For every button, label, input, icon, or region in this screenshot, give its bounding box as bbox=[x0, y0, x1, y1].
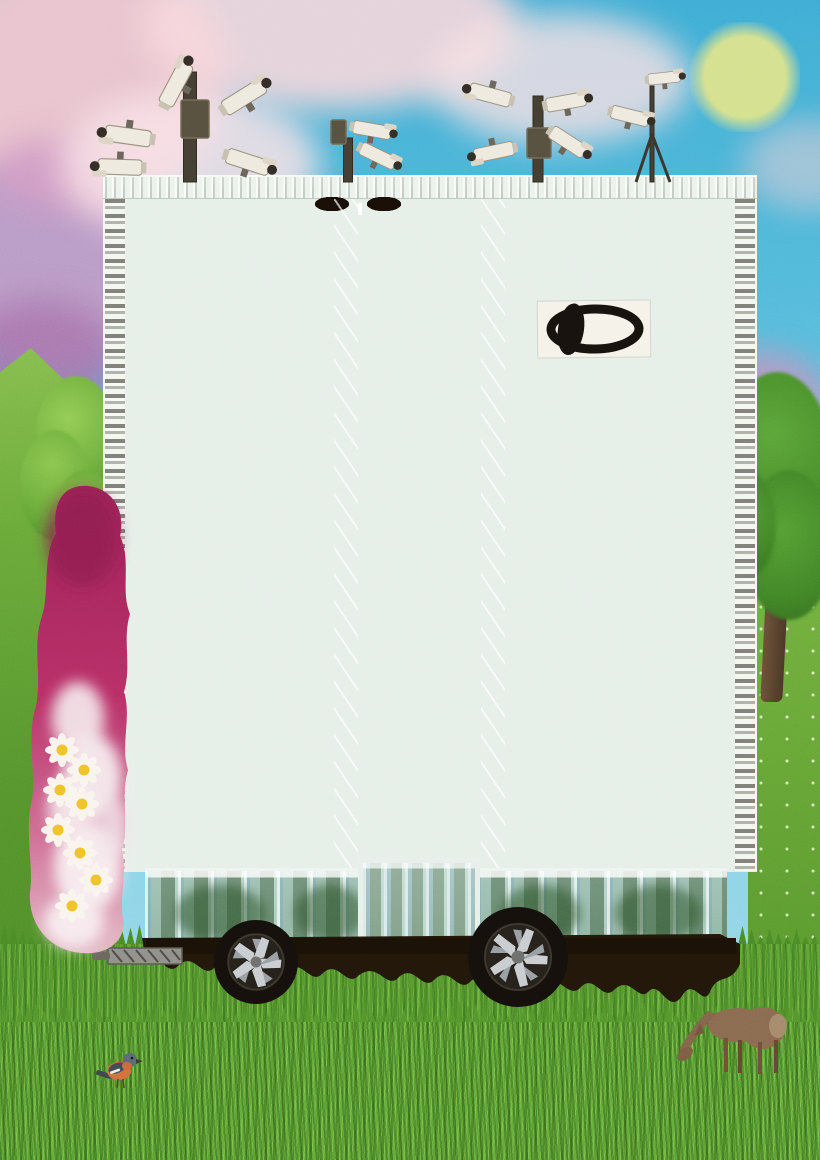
daisy-flower bbox=[79, 863, 113, 897]
daisy-flower bbox=[55, 889, 89, 923]
cctv-camera bbox=[352, 138, 406, 180]
daisy-flower bbox=[65, 787, 99, 821]
scaffold-brace bbox=[481, 199, 505, 871]
tripod-leg bbox=[652, 134, 670, 182]
cctv-layer bbox=[0, 0, 820, 220]
cctv-camera bbox=[464, 133, 519, 167]
cctv-camera bbox=[215, 71, 280, 125]
eye-logo-icon bbox=[538, 300, 651, 357]
cctv-camera bbox=[460, 73, 519, 111]
car-wheel bbox=[214, 920, 298, 1004]
car-wheel bbox=[468, 907, 568, 1007]
camera-control-box bbox=[331, 120, 346, 144]
collage-poster bbox=[0, 0, 820, 1160]
tower-facade bbox=[103, 199, 757, 871]
scaffold-brace bbox=[334, 199, 358, 871]
cctv-camera bbox=[541, 88, 596, 120]
smoke-flower-column bbox=[22, 478, 148, 962]
eye-logo-plaque bbox=[538, 300, 651, 357]
daisy-flower bbox=[63, 836, 97, 870]
facade-edge-column bbox=[735, 199, 757, 871]
apartment-tower bbox=[103, 175, 757, 872]
cctv-camera bbox=[89, 151, 147, 179]
cctv-camera bbox=[218, 144, 280, 186]
perched-bird bbox=[94, 1046, 146, 1094]
cctv-camera bbox=[95, 116, 157, 151]
cctv-camera bbox=[347, 117, 399, 147]
camera-control-box bbox=[181, 100, 209, 138]
grazing-deer bbox=[658, 980, 803, 1080]
